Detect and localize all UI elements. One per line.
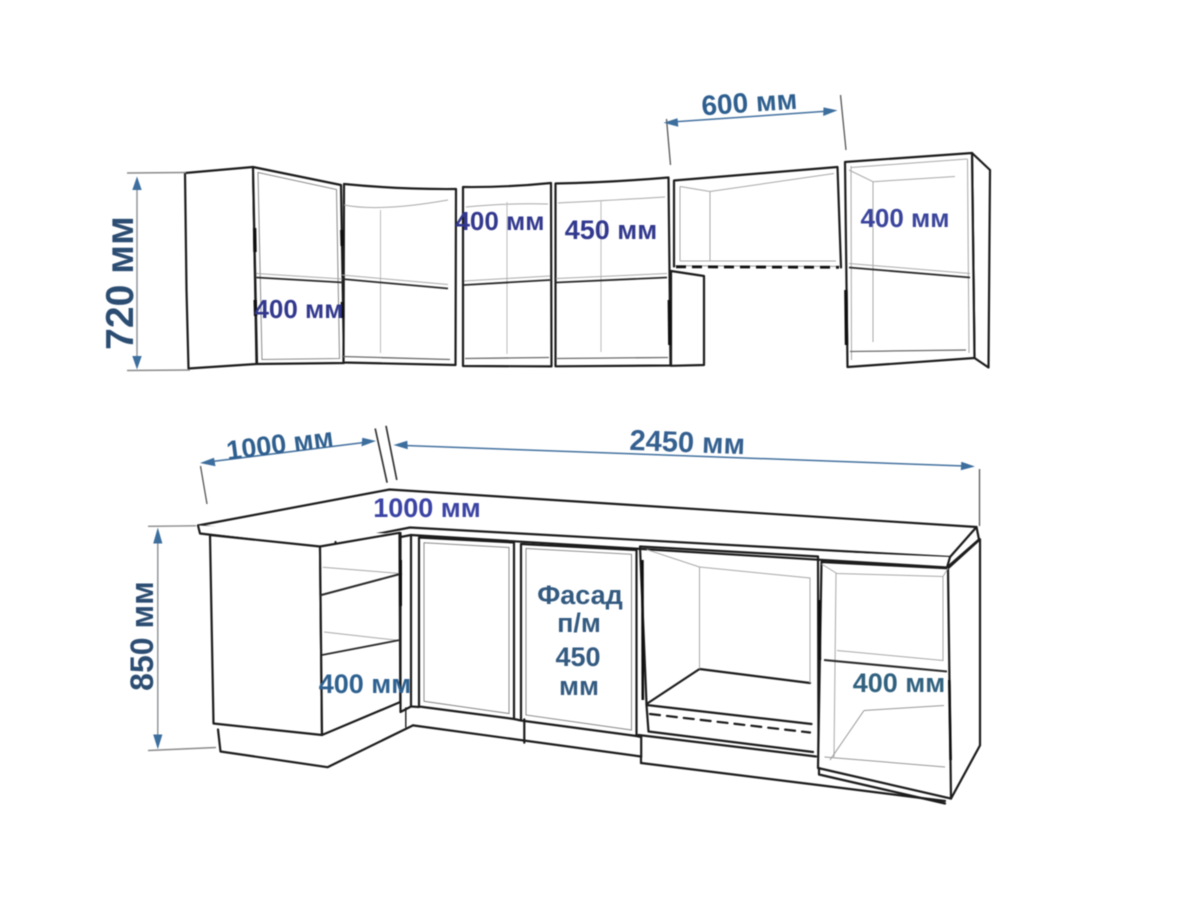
svg-text:мм: мм	[559, 671, 599, 701]
svg-text:720 мм: 720 мм	[99, 216, 142, 350]
svg-text:400 мм: 400 мм	[853, 668, 946, 698]
svg-text:450: 450	[555, 642, 600, 672]
svg-text:850 мм: 850 мм	[124, 581, 160, 691]
svg-text:450 мм: 450 мм	[565, 215, 658, 245]
svg-text:2450 мм: 2450 мм	[629, 425, 746, 461]
svg-text:Фасад: Фасад	[537, 580, 623, 610]
svg-text:400 мм: 400 мм	[254, 294, 343, 324]
svg-text:п/м: п/м	[557, 608, 601, 638]
svg-text:400 мм: 400 мм	[455, 206, 544, 236]
svg-text:400 мм: 400 мм	[319, 669, 412, 699]
svg-text:1000 мм: 1000 мм	[373, 493, 481, 523]
svg-text:400 мм: 400 мм	[860, 203, 949, 233]
